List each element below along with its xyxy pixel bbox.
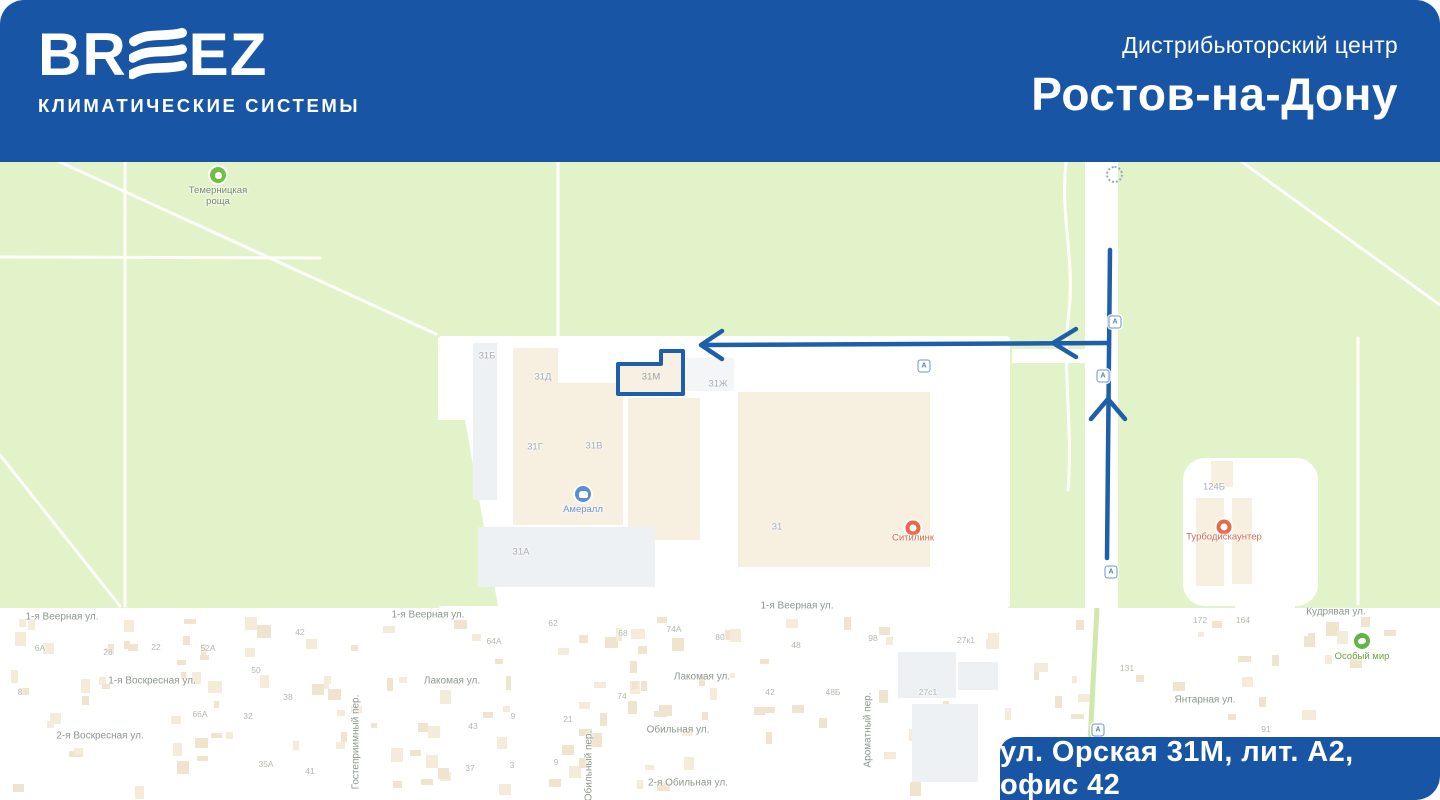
address-badge: ул. Орская 31М, лит. А2, офис 42 bbox=[1000, 737, 1440, 800]
header: BR EZ КЛИМАТИЧЕСКИЕ СИСТЕМЫ Дистрибьютор… bbox=[0, 0, 1440, 162]
breez-logo: BR EZ КЛИМАТИЧЕСКИЕ СИСТЕМЫ bbox=[38, 24, 360, 117]
logo-subtitle: КЛИМАТИЧЕСКИЕ СИСТЕМЫ bbox=[38, 95, 360, 117]
logo-text-br: BR bbox=[38, 25, 127, 85]
bus-stop-icon: А bbox=[1109, 316, 1122, 329]
logo-wind-icon bbox=[129, 28, 187, 82]
bus-stop-icon: А bbox=[1105, 566, 1118, 579]
city-title: Ростов-на-Дону bbox=[1031, 67, 1398, 121]
distribution-center-label: Дистрибьюторский центр bbox=[1031, 32, 1398, 59]
flyer-card: 31М 1-я Веерная ул.1-я Веерная ул.1-я Ве… bbox=[0, 0, 1440, 800]
address-text: ул. Орская 31М, лит. А2, офис 42 bbox=[1000, 736, 1440, 800]
bus-stop-icon: А bbox=[918, 360, 931, 373]
logo-text-ez: EZ bbox=[189, 25, 268, 85]
bus-stop-icon: А bbox=[1097, 370, 1110, 383]
